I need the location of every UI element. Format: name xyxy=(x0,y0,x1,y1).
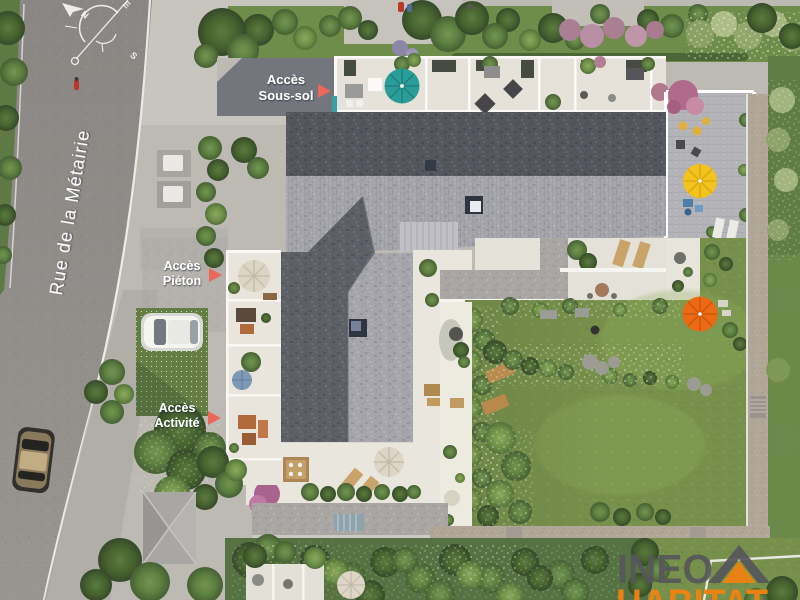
svg-text:Activité: Activité xyxy=(154,416,199,430)
svg-text:Piéton: Piéton xyxy=(163,274,201,288)
svg-text:Accès: Accès xyxy=(164,259,201,273)
svg-text:Accès: Accès xyxy=(159,401,196,415)
svg-text:Sous-sol: Sous-sol xyxy=(259,88,314,103)
svg-text:Accès: Accès xyxy=(267,72,305,87)
svg-text:HABITAT: HABITAT xyxy=(616,582,768,600)
